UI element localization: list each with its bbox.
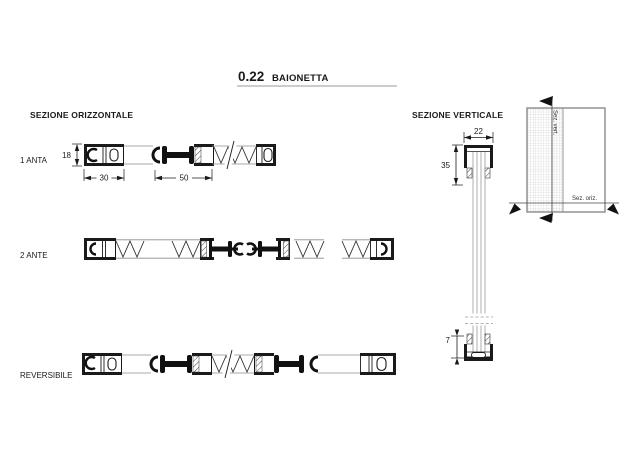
svg-text:35: 35 — [441, 161, 450, 170]
right-frame-profile — [342, 238, 394, 260]
frame-profile — [82, 353, 122, 375]
baionetta-sash-profile — [151, 353, 212, 375]
gasket — [485, 168, 490, 178]
frame-profile-30 — [84, 144, 124, 166]
svg-text:22: 22 — [474, 127, 483, 136]
title-block: 0.22 BAIONETTA — [237, 69, 397, 86]
break-symbol — [463, 314, 494, 326]
row-1-label: 1 ANTA — [20, 156, 48, 165]
cut-arrow-icon — [509, 204, 521, 215]
horizontal-cut-label: Sez. oriz. — [572, 196, 597, 202]
elevation-key-diagram: Sez. vert. Sez. oriz. — [509, 96, 619, 223]
header-sezione-verticale: SEZIONE VERTICALE — [412, 110, 503, 120]
dimension-7: 7 — [446, 330, 464, 365]
chamber-slot — [472, 353, 486, 358]
row-2-label: 2 ANTE — [20, 251, 48, 260]
chamber-slot — [110, 149, 118, 161]
svg-text:30: 30 — [100, 174, 109, 183]
glass-wedge-symbol — [212, 141, 256, 169]
cut-arrow-icon — [607, 204, 619, 215]
gasket — [467, 168, 472, 178]
row-1-anta: 1 ANTA 18 30 — [20, 141, 276, 183]
hook-clip — [153, 148, 160, 162]
hook-clip — [151, 357, 158, 371]
glass-wedge-symbol — [212, 350, 254, 378]
row-2-ante: 2 ANTE — [20, 238, 394, 260]
gasket — [467, 334, 472, 344]
screw-boss — [88, 149, 97, 161]
dimension-18: 18 — [62, 144, 82, 166]
central-meeting-profiles — [172, 238, 324, 260]
svg-text:18: 18 — [62, 151, 71, 160]
title-name: BAIONETTA — [272, 73, 329, 84]
svg-text:50: 50 — [180, 174, 189, 183]
right-frame-profile — [360, 353, 396, 375]
title-code: 0.22 — [238, 69, 264, 84]
glass-wedge-symbol — [116, 241, 144, 257]
bottom-frame-profile — [464, 334, 493, 361]
screw-boss — [91, 244, 97, 255]
baionetta-sash-profile — [153, 144, 214, 166]
row-3-label: REVERSIBILE — [20, 371, 72, 380]
left-frame-profile — [84, 238, 116, 260]
gasket-hatch — [195, 147, 201, 163]
cut-arrow-icon — [539, 96, 553, 106]
vertical-section-drawing: 22 35 — [441, 127, 494, 365]
drawing-sheet: 0.22 BAIONETTA SEZIONE ORIZZONTALE SEZIO… — [0, 0, 640, 453]
drawing-canvas: 0.22 BAIONETTA SEZIONE ORIZZONTALE SEZIO… — [0, 0, 640, 453]
dimension-30: 30 — [84, 169, 124, 183]
top-frame-profile — [464, 145, 493, 178]
dimension-35: 35 — [441, 145, 463, 185]
gasket — [485, 334, 490, 344]
cut-arrow-icon — [539, 213, 553, 223]
hook-clip — [311, 357, 318, 371]
dimension-22: 22 — [464, 127, 493, 143]
header-sezione-orizzontale: SEZIONE ORIZZONTALE — [30, 110, 133, 120]
row-reversibile: REVERSIBILE — [20, 350, 396, 380]
screw-boss — [381, 244, 387, 255]
baionetta-sash-profile-mirrored — [254, 353, 318, 375]
screw-boss — [86, 357, 95, 369]
end-profile — [256, 144, 276, 166]
svg-text:7: 7 — [446, 336, 451, 345]
vertical-cut-label: Sez. vert. — [552, 110, 558, 136]
dimension-50: 50 — [155, 169, 212, 183]
